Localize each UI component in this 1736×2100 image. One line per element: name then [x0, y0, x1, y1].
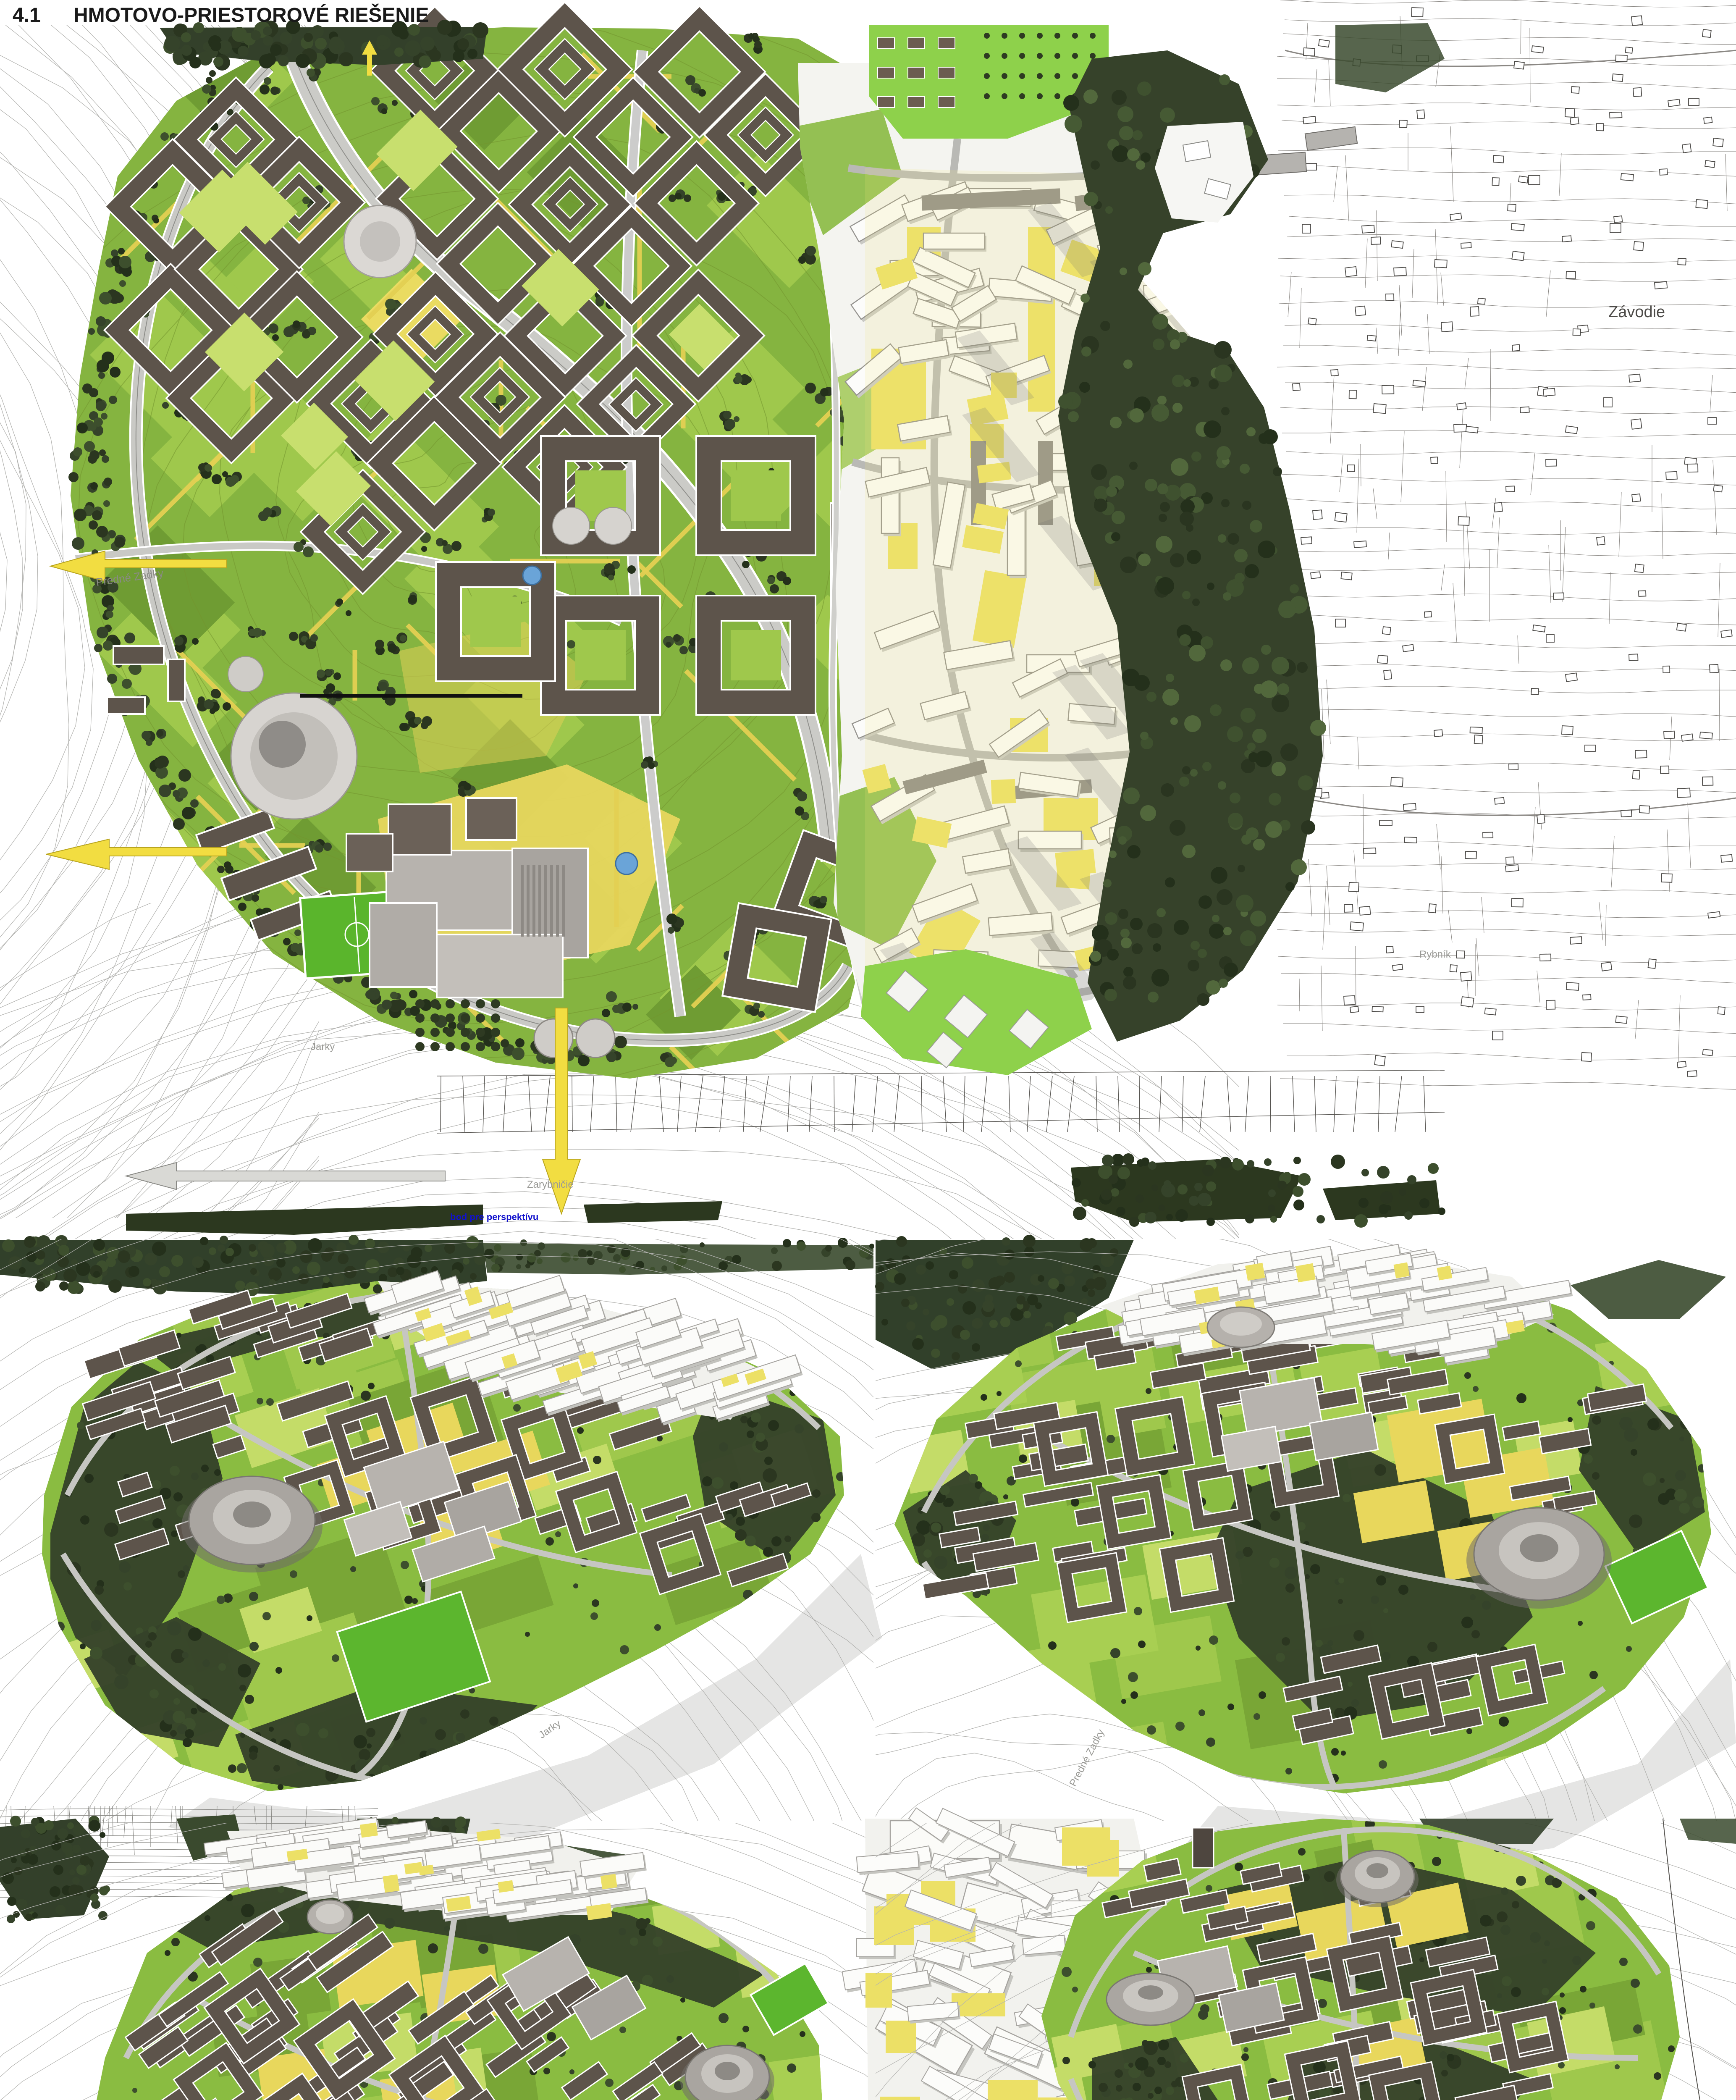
svg-text:Zarybničie: Zarybničie: [527, 1179, 574, 1190]
svg-text:Závodie: Závodie: [1608, 303, 1665, 321]
svg-text:Jarky: Jarky: [311, 1041, 335, 1053]
svg-text:HMOTOVO-PRIESTOROVÉ RIEŠENIE: HMOTOVO-PRIESTOROVÉ RIEŠENIE: [73, 3, 429, 26]
svg-text:4.1: 4.1: [13, 4, 41, 26]
svg-text:bod pre perspektívu: bod pre perspektívu: [450, 1212, 538, 1222]
svg-text:Rybník: Rybník: [1419, 949, 1451, 960]
